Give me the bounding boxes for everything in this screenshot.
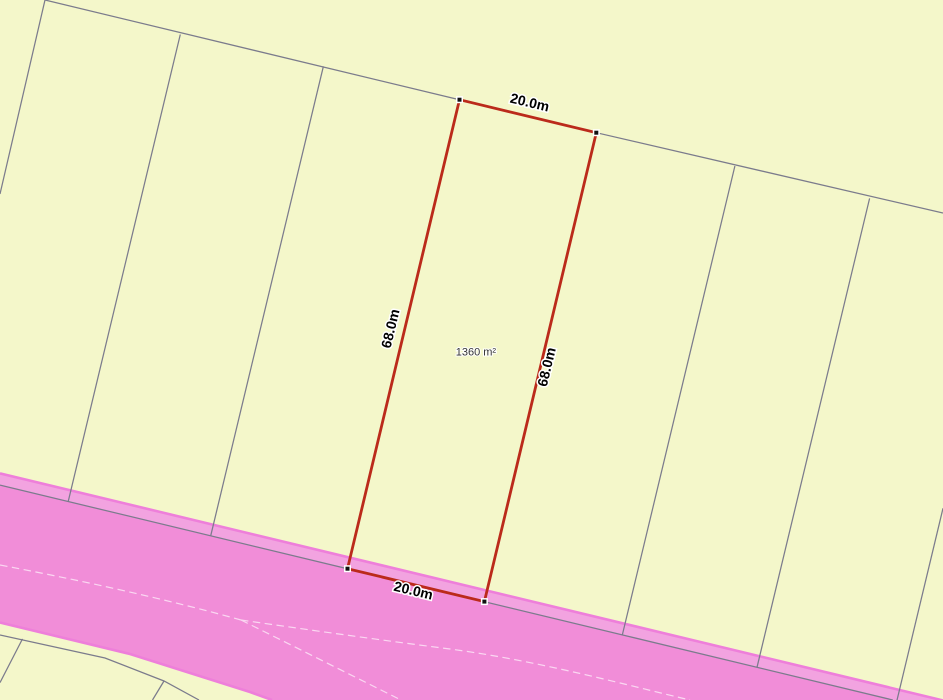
svg-text:1360 m²: 1360 m² (456, 347, 497, 359)
